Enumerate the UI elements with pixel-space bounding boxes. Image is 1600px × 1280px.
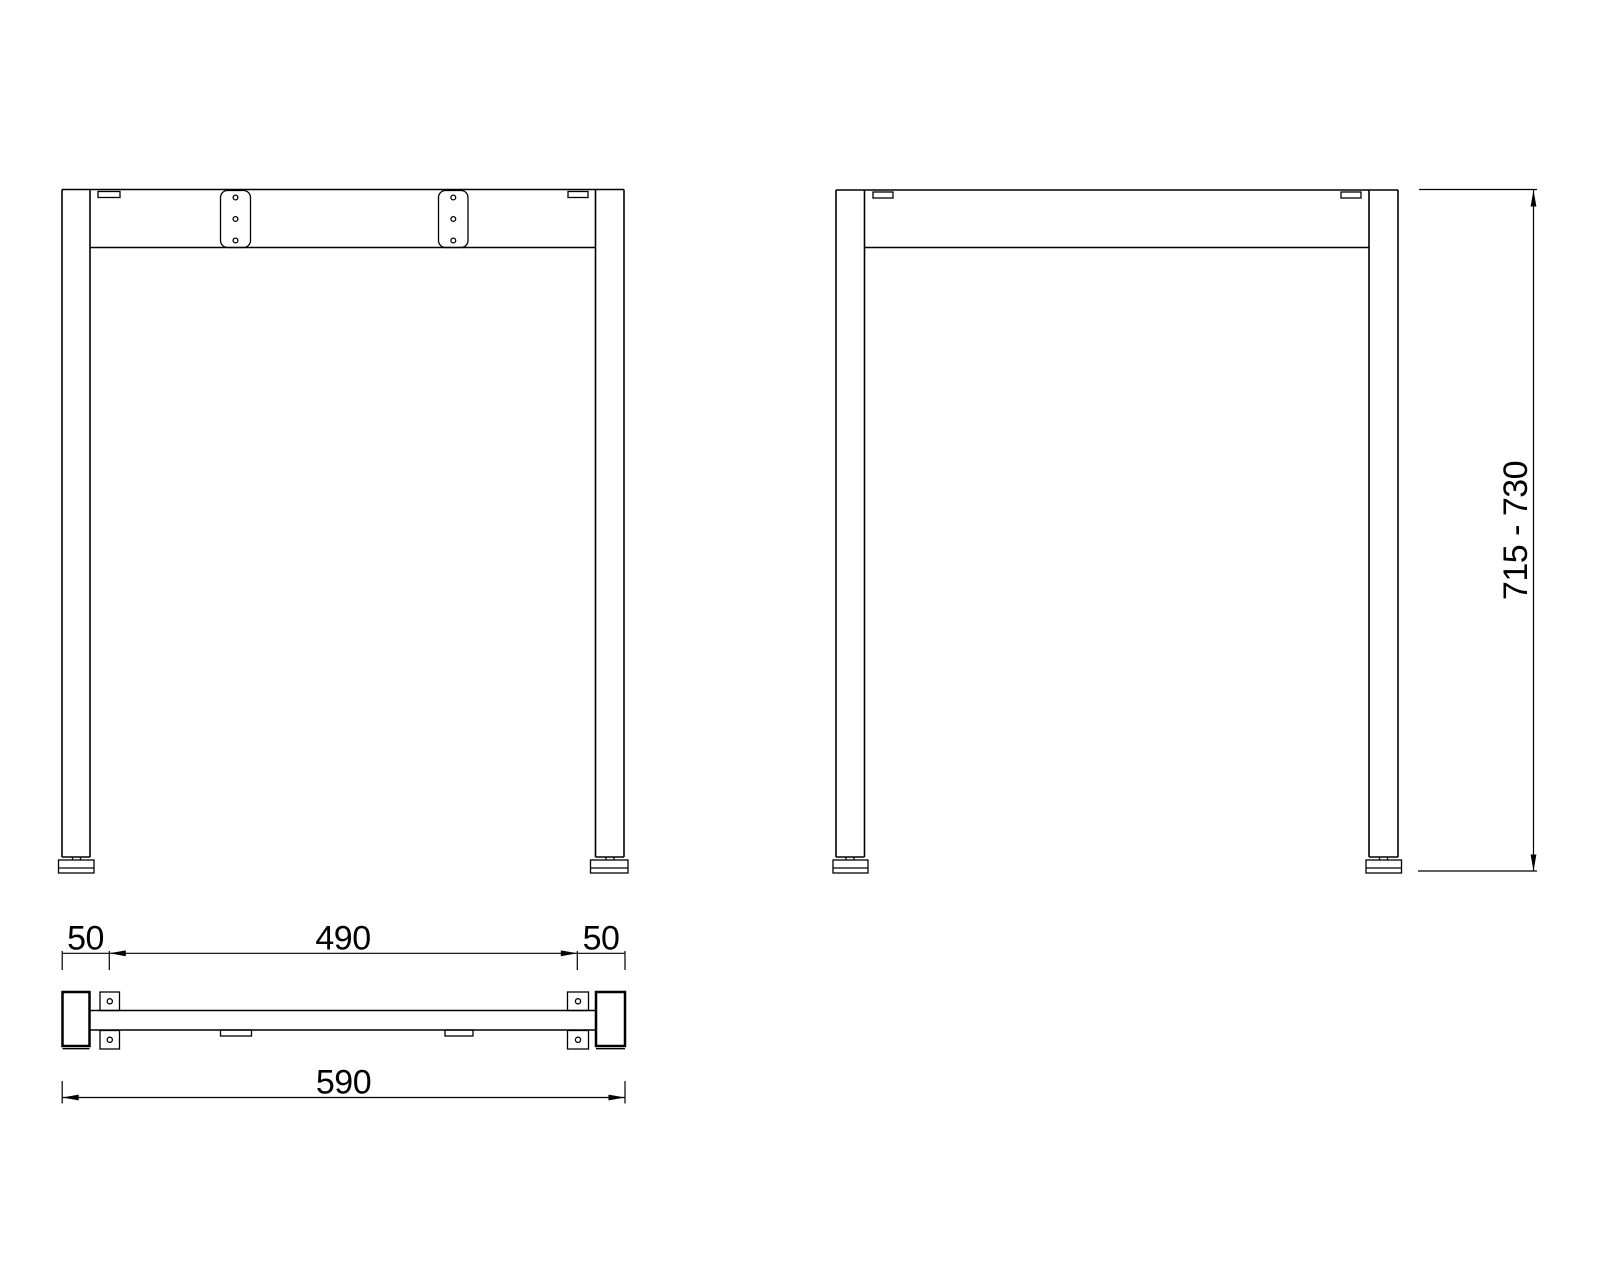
front-right-leg	[596, 190, 625, 858]
front-left-leg	[62, 190, 90, 858]
plan-tab-1	[221, 1030, 252, 1036]
side-left-slot	[873, 192, 893, 198]
plan-right-plates	[568, 992, 589, 1049]
dim-overall-width-label: 590	[316, 1064, 371, 1102]
plan-right-leg-section	[596, 992, 625, 1046]
width-dimensions: 50 490 50 590	[62, 920, 625, 1104]
side-left-leg	[836, 190, 865, 857]
front-mounting-plate-1	[221, 191, 251, 248]
front-right-foot	[591, 857, 629, 873]
overall-arrow-right	[609, 1095, 626, 1101]
plan-left-leg-section	[63, 992, 90, 1046]
height-arrow-down	[1531, 855, 1537, 872]
front-mounting-plate-2	[439, 191, 469, 248]
front-right-slot	[568, 192, 588, 198]
side-view	[833, 190, 1402, 873]
upper-arrow-right	[561, 950, 578, 956]
height-dimension: 715 - 730	[1418, 190, 1537, 872]
dim-hole-spacing-label: 490	[315, 920, 370, 958]
side-right-foot	[1366, 857, 1402, 873]
front-left-slot	[98, 192, 120, 198]
upper-arrow-left	[109, 950, 126, 956]
side-left-foot	[833, 857, 868, 873]
dim-right-overhang-label: 50	[583, 920, 620, 958]
side-right-leg	[1369, 190, 1398, 857]
dim-left-overhang-label: 50	[67, 920, 104, 958]
plan-left-plates	[100, 992, 120, 1049]
side-right-slot	[1341, 192, 1361, 198]
front-left-foot	[59, 857, 95, 873]
plan-tab-2	[445, 1030, 473, 1036]
height-arrow-up	[1531, 190, 1537, 207]
plan-view	[63, 992, 626, 1049]
overall-arrow-left	[62, 1095, 78, 1101]
technical-drawing: 715 - 730 50	[0, 0, 1600, 1280]
height-dim-label: 715 - 730	[1497, 461, 1535, 600]
front-view	[59, 190, 629, 874]
